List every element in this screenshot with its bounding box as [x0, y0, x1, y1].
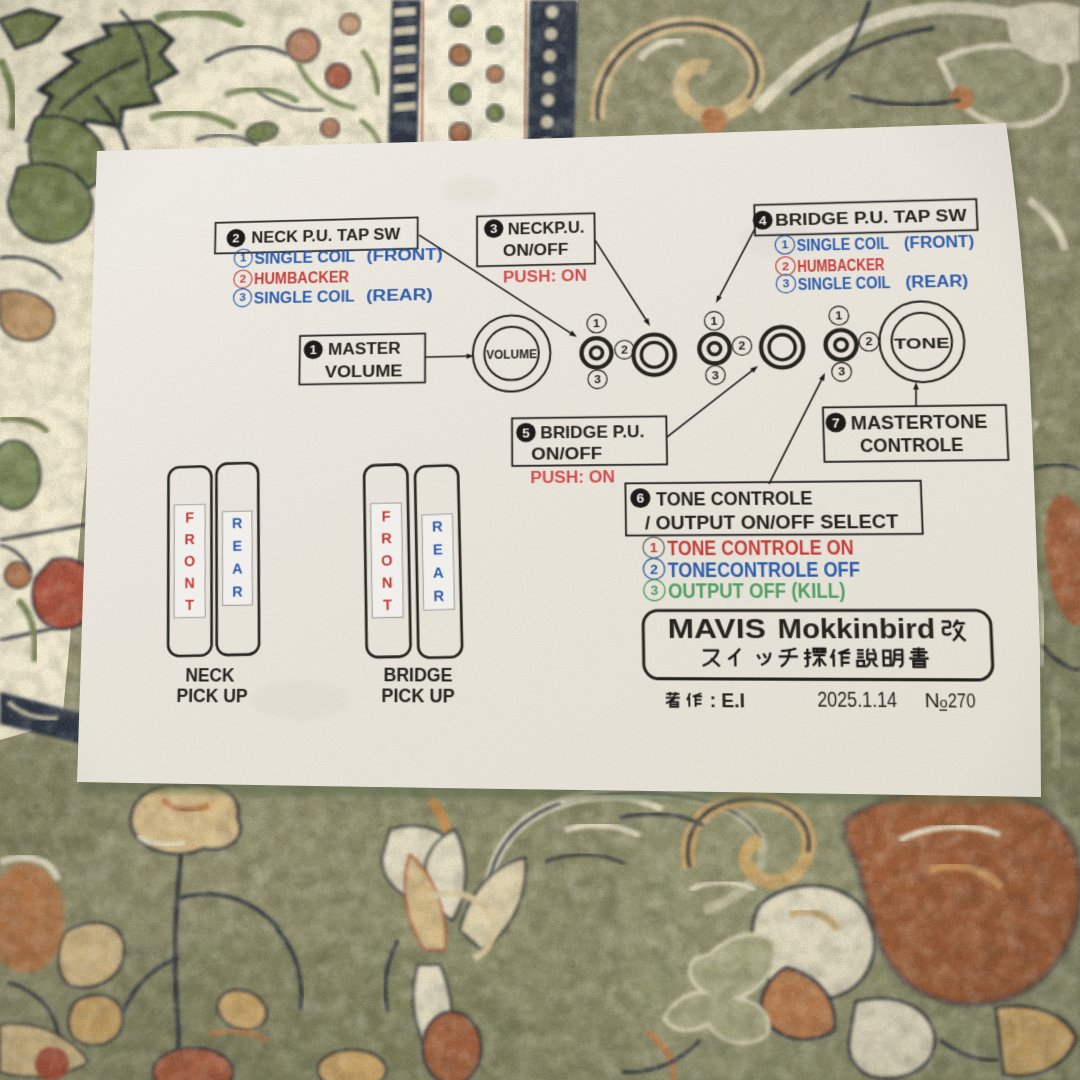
svg-text:SINGLE COIL: SINGLE COIL: [798, 274, 892, 294]
svg-text:TONE CONTROLE: TONE CONTROLE: [656, 487, 813, 510]
svg-text:1: 1: [309, 343, 317, 358]
svg-text:BRIDGE P.U.: BRIDGE P.U.: [540, 423, 644, 443]
svg-text:TONECONTROLE OFF: TONECONTROLE OFF: [668, 558, 861, 581]
svg-text:ON/OFF: ON/OFF: [531, 445, 602, 464]
svg-text:ON/OFF: ON/OFF: [503, 241, 569, 261]
svg-text:R: R: [184, 531, 195, 548]
svg-text:(REAR): (REAR): [366, 286, 433, 305]
svg-text:3: 3: [594, 373, 601, 386]
svg-text:6: 6: [636, 491, 644, 507]
svg-text:NECK: NECK: [185, 666, 235, 686]
svg-text:2: 2: [865, 335, 872, 348]
svg-text:R: R: [232, 583, 243, 600]
svg-text:SINGLE COIL: SINGLE COIL: [254, 288, 356, 308]
svg-text:CONTROLE: CONTROLE: [860, 436, 964, 457]
svg-text:270: 270: [947, 688, 976, 712]
svg-text:N: N: [924, 688, 940, 711]
svg-text:R: R: [381, 530, 392, 547]
svg-text:1: 1: [711, 315, 718, 328]
svg-text:R: R: [433, 588, 444, 605]
svg-text:R: R: [432, 518, 443, 535]
svg-text:A: A: [232, 561, 243, 578]
svg-text:SINGLE COIL: SINGLE COIL: [254, 248, 355, 268]
svg-text:E.I: E.I: [721, 689, 745, 712]
svg-text:PUSH: ON: PUSH: ON: [503, 267, 587, 287]
svg-text:VOLUME: VOLUME: [325, 362, 403, 381]
svg-text:OUTPUT OFF (KILL): OUTPUT OFF (KILL): [668, 580, 846, 603]
svg-text:MAVIS: MAVIS: [667, 614, 766, 645]
svg-text:2025.1.14: 2025.1.14: [817, 687, 898, 712]
svg-text:5: 5: [522, 425, 530, 440]
svg-text:NECK P.U. TAP SW: NECK P.U. TAP SW: [251, 226, 400, 247]
svg-text:N: N: [382, 574, 393, 591]
svg-text:3: 3: [490, 222, 498, 237]
svg-text:PICK UP: PICK UP: [176, 687, 248, 707]
svg-text:3: 3: [782, 278, 789, 291]
svg-text:Mokkinbird: Mokkinbird: [777, 614, 935, 645]
svg-text:1: 1: [835, 310, 842, 323]
svg-text:MASTERTONE: MASTERTONE: [850, 412, 988, 434]
svg-text:2: 2: [621, 344, 628, 357]
svg-text:T: T: [185, 597, 195, 614]
svg-text:E: E: [232, 538, 242, 555]
svg-text:3: 3: [650, 583, 658, 599]
svg-text:T: T: [383, 597, 393, 614]
svg-text:TONE: TONE: [894, 333, 950, 352]
svg-text:1: 1: [593, 318, 600, 331]
svg-text:(FRONT): (FRONT): [904, 232, 975, 252]
svg-text:BRIDGE: BRIDGE: [384, 666, 453, 686]
svg-text:2: 2: [232, 231, 240, 246]
svg-text:2: 2: [782, 260, 789, 273]
svg-text:BRIDGE P.U. TAP SW: BRIDGE P.U. TAP SW: [775, 207, 967, 230]
svg-text:O: O: [184, 553, 195, 570]
svg-text:7: 7: [832, 415, 841, 431]
svg-text:4: 4: [759, 213, 767, 228]
svg-text:VOLUME: VOLUME: [486, 347, 537, 362]
svg-text:A: A: [433, 564, 444, 581]
svg-text:PICK UP: PICK UP: [381, 687, 454, 708]
svg-text::: :: [709, 689, 716, 712]
svg-text:1: 1: [781, 239, 788, 252]
svg-text:TONE CONTROLE ON: TONE CONTROLE ON: [667, 537, 854, 560]
svg-text:O: O: [381, 552, 393, 569]
svg-text:2: 2: [240, 273, 247, 286]
svg-text:(REAR): (REAR): [905, 272, 969, 292]
svg-text:N: N: [184, 575, 194, 592]
svg-text:3: 3: [239, 292, 246, 305]
svg-text:3: 3: [838, 366, 845, 379]
svg-text:1: 1: [240, 252, 247, 265]
svg-text:2: 2: [738, 340, 745, 353]
svg-text:1: 1: [650, 540, 658, 556]
svg-text:2: 2: [650, 562, 658, 578]
svg-text:3: 3: [712, 369, 719, 382]
svg-text:F: F: [185, 509, 194, 525]
svg-text:F: F: [382, 508, 391, 525]
svg-text:NECKP.U.: NECKP.U.: [508, 219, 585, 239]
svg-text:SINGLE COIL: SINGLE COIL: [796, 234, 889, 255]
svg-text:/ OUTPUT ON/OFF SELECT: / OUTPUT ON/OFF SELECT: [645, 510, 899, 534]
svg-text:PUSH: ON: PUSH: ON: [530, 468, 615, 487]
svg-text:(FRONT): (FRONT): [366, 246, 442, 266]
svg-text:MASTER: MASTER: [328, 340, 401, 359]
svg-text:R: R: [232, 515, 243, 532]
svg-text:E: E: [433, 541, 443, 558]
svg-text:HUMBACKER: HUMBACKER: [254, 269, 350, 289]
